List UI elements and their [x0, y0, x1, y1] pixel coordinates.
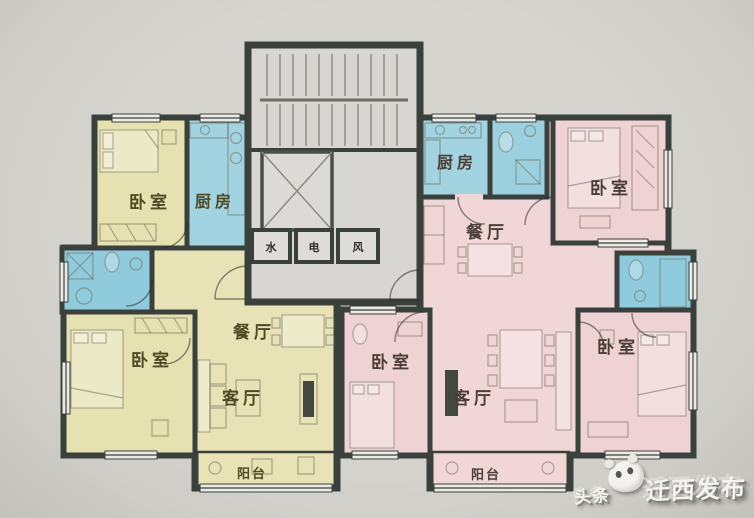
floor-plan-photo: 卧室 厨房 卧室 餐厅 客厅 阳台 [0, 0, 754, 518]
panda-logo-icon [606, 459, 646, 495]
label-left-bedroom-top: 卧室 [129, 192, 171, 212]
label-left-dining: 餐厅 [233, 322, 275, 342]
label-right-bedroom-top: 卧室 [590, 178, 632, 198]
watermark-prefix: 头条 [573, 481, 611, 508]
label-right-dining: 餐厅 [466, 222, 508, 242]
watermark-name: 迁西发布 [645, 468, 746, 506]
watermark: 头条 迁西发布 [574, 458, 754, 518]
label-shaft-electric: 电 [309, 240, 320, 254]
elevator [262, 152, 332, 230]
label-right-living: 客厅 [452, 388, 495, 408]
label-left-living: 客厅 [221, 388, 264, 408]
tv-left-living [303, 381, 314, 417]
label-right-bedroom-middle: 卧室 [371, 352, 413, 372]
label-right-balcony: 阳台 [471, 467, 501, 482]
label-shaft-vent: 风 [353, 240, 364, 254]
label-left-balcony: 阳台 [237, 466, 267, 481]
label-right-kitchen: 厨房 [437, 153, 477, 172]
floor-plan-drawing: 卧室 厨房 卧室 餐厅 客厅 阳台 [0, 0, 754, 518]
room-right-bathroom-top [490, 118, 547, 197]
room-right-bathroom-middle [617, 253, 693, 313]
label-left-bedroom-bottom: 卧室 [131, 350, 173, 370]
label-right-bedroom-bottom: 卧室 [597, 337, 639, 357]
utility-shafts: 水 电 风 [252, 230, 378, 262]
core-stair-elevator: 水 电 风 [248, 45, 420, 302]
label-shaft-water: 水 [266, 240, 278, 254]
label-left-kitchen: 厨房 [195, 192, 235, 211]
